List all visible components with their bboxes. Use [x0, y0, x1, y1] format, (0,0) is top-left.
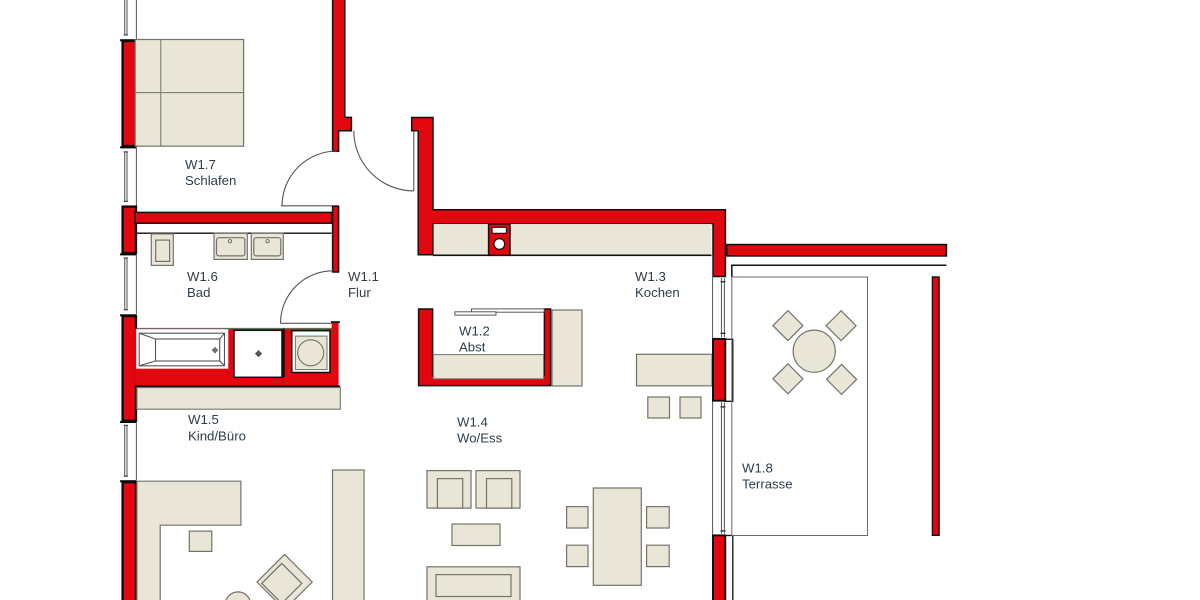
svg-text:Wo/Ess: Wo/Ess: [457, 431, 503, 446]
svg-text:W1.1: W1.1: [348, 269, 379, 284]
svg-text:W1.4: W1.4: [457, 415, 488, 430]
svg-text:Bad: Bad: [187, 285, 210, 300]
svg-text:W1.2: W1.2: [459, 324, 490, 339]
svg-text:Terrasse: Terrasse: [742, 477, 793, 492]
svg-text:Schlafen: Schlafen: [185, 173, 236, 188]
svg-text:W1.8: W1.8: [742, 461, 773, 476]
svg-text:W1.6: W1.6: [187, 269, 218, 284]
svg-text:W1.5: W1.5: [188, 412, 219, 427]
svg-text:Abst: Abst: [459, 340, 486, 355]
svg-text:Flur: Flur: [348, 285, 371, 300]
svg-text:Kind/Büro: Kind/Büro: [188, 429, 246, 444]
svg-text:Kochen: Kochen: [635, 285, 680, 300]
svg-text:W1.3: W1.3: [635, 269, 666, 284]
svg-text:W1.7: W1.7: [185, 157, 216, 172]
